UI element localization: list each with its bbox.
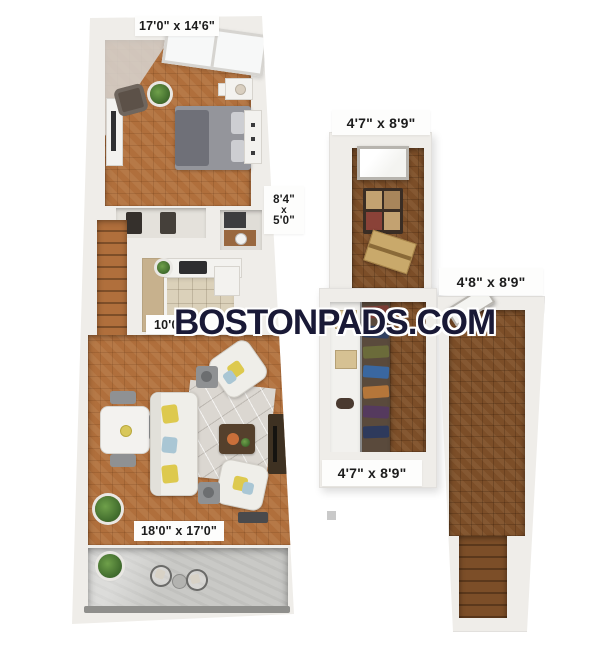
storage-shelf <box>363 188 403 234</box>
chair-cushion <box>190 573 201 584</box>
garment-icon <box>363 345 390 358</box>
garment-icon <box>363 365 390 379</box>
garment-icon <box>363 426 389 439</box>
small-artifact-square <box>327 511 336 520</box>
garment-icon <box>363 405 390 418</box>
floor-plan-image: 17'0" x 14'6" 8'4" x 5'0" 10'0" 18'0" x … <box>0 0 605 653</box>
hall-times-text: x <box>281 206 287 215</box>
door-light <box>360 149 406 177</box>
entry-door <box>357 146 409 180</box>
sofa-pillow-yellow <box>161 404 179 424</box>
dining-chair <box>110 391 136 404</box>
stove-icon <box>179 261 207 274</box>
balcony-railing <box>84 606 290 613</box>
side-table-tray <box>203 487 214 498</box>
tv-bench <box>268 414 288 474</box>
tv-icon <box>273 426 277 462</box>
bed-pillow <box>231 112 245 134</box>
coffee-table <box>219 424 255 454</box>
bedroom-dresser <box>244 110 262 164</box>
hanging-clothes-icon <box>126 212 142 234</box>
box-tape <box>368 243 411 260</box>
side-hall-dimension-text: 4'8" x 8'9" <box>457 274 526 290</box>
closet-room-dimension-label: 4'7" x 8'9" <box>322 460 422 486</box>
side-table <box>198 482 220 504</box>
side-hall-dimension-label: 4'8" x 8'9" <box>439 268 543 295</box>
coffee-table-decor <box>227 433 239 445</box>
sofa-back <box>151 393 161 495</box>
bedroom-plant <box>150 84 170 104</box>
hall-closet <box>116 208 206 238</box>
closet-room-dimension-text: 4'7" x 8'9" <box>338 465 407 481</box>
bedroom-dimension-label: 17'0" x 14'6" <box>135 16 219 36</box>
closet-box <box>335 350 357 369</box>
side-hall-floor <box>449 310 525 536</box>
bed-pillow <box>231 140 245 162</box>
garment-icon <box>363 385 390 399</box>
bathroom-vanity <box>224 230 256 246</box>
bathroom <box>220 210 262 250</box>
storage-box <box>366 191 382 209</box>
shower-icon <box>224 212 246 228</box>
sofa-pillow-blue <box>161 436 178 453</box>
side-hall-stairs <box>459 536 507 618</box>
living-room-dimension-text: 18'0" x 17'0" <box>141 524 217 538</box>
dining-table <box>100 406 150 454</box>
lamp-icon <box>235 84 246 95</box>
right-top-room-dimension-text: 4'7" x 8'9" <box>347 115 416 131</box>
nightstand <box>225 78 253 100</box>
storage-box <box>384 212 400 230</box>
storage-box <box>384 191 400 209</box>
armchair <box>214 458 271 513</box>
armchair-pillow-blue <box>241 481 254 495</box>
living-room-dimension-label: 18'0" x 17'0" <box>134 521 224 541</box>
kitchen-plant <box>157 261 170 274</box>
window-mullion <box>211 31 219 67</box>
right-top-room-dimension-label: 4'7" x 8'9" <box>332 110 430 135</box>
shoes-icon <box>336 398 354 409</box>
watermark-label: BOSTONPADS.COM <box>174 303 495 342</box>
entry-corridor-floor <box>97 220 127 352</box>
side-table <box>196 366 218 388</box>
side-table-tray <box>201 371 212 382</box>
balcony-table <box>172 574 187 589</box>
fridge <box>214 266 240 296</box>
table-setting <box>120 425 132 437</box>
side-hall-walls <box>437 296 545 632</box>
bed <box>175 106 251 170</box>
sofa <box>150 392 198 496</box>
dresser-knobs <box>251 119 255 155</box>
hall-depth-text: 5'0" <box>273 215 295 227</box>
bedroom-dimension-text: 17'0" x 14'6" <box>139 19 215 33</box>
hall-dimension-label: 8'4" x 5'0" <box>264 186 304 234</box>
living-room-heater <box>238 512 268 523</box>
watermark-text: BOSTONPADS.COM <box>174 300 442 346</box>
sink-icon <box>235 233 247 245</box>
living-room-plant <box>95 496 121 522</box>
storage-box <box>366 212 382 230</box>
coffee-table-plant <box>241 438 250 447</box>
sofa-pillow-yellow <box>161 464 179 484</box>
hall-width-text: 8'4" <box>273 194 295 206</box>
bed-blanket <box>175 110 209 166</box>
tv-icon <box>111 111 116 151</box>
dining-chair <box>110 454 136 467</box>
balcony-plant <box>98 554 122 578</box>
chair-cushion <box>154 568 166 580</box>
right-top-room-walls <box>329 132 432 302</box>
hanging-clothes-icon <box>160 212 176 234</box>
